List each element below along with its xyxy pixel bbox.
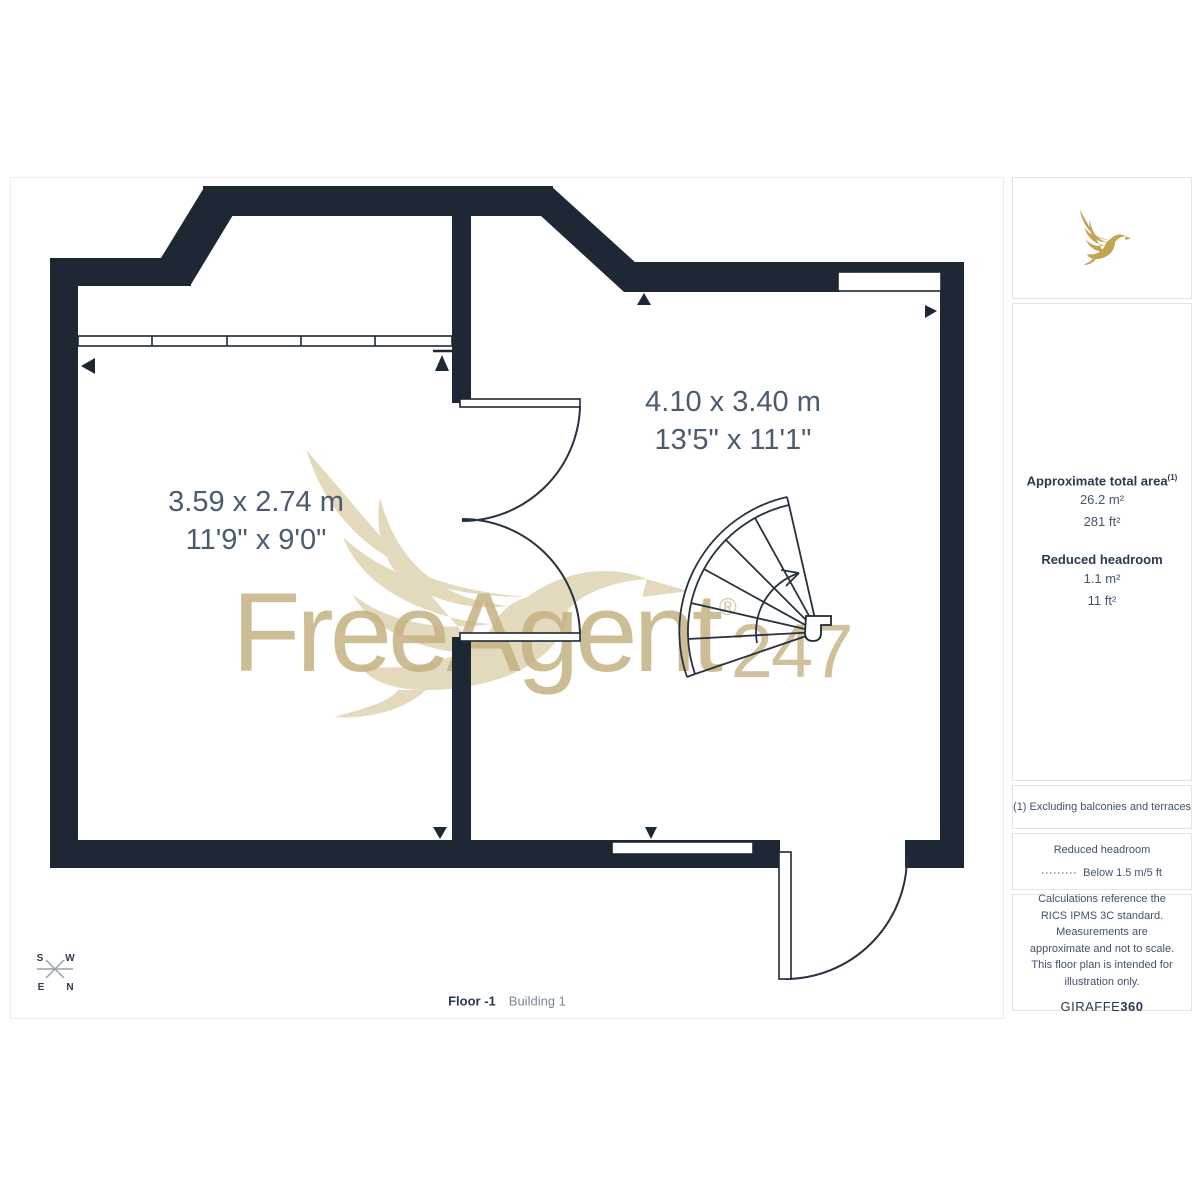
sidebar-area-box: Approximate total area(1) 26.2 m² 281 ft… — [1012, 303, 1192, 781]
sidebar-legend-box: Reduced headroom Below 1.5 m/5 ft — [1012, 833, 1192, 890]
footnote-text: (1) Excluding balconies and terraces — [1013, 799, 1191, 816]
room-imperial: 13'5" x 11'1" — [645, 421, 821, 459]
headroom-heading: Reduced headroom — [1041, 552, 1162, 567]
headroom-metric: 1.1 m² — [1084, 570, 1121, 589]
headroom-imperial: 11 ft² — [1088, 592, 1117, 611]
watermark-word: FreeAgent — [232, 570, 719, 695]
dotted-line-icon — [1042, 871, 1076, 875]
sidebar-footnote-box: (1) Excluding balconies and terraces — [1012, 785, 1192, 829]
watermark-247: 247 — [731, 609, 852, 694]
area-heading: Approximate total area(1) — [1027, 473, 1178, 488]
brand-bird-icon — [1071, 207, 1133, 269]
floorplan-page: FreeAgent®247 — [0, 0, 1200, 1200]
legend-heading: Reduced headroom — [1054, 842, 1151, 859]
floor-title: Floor -1 Building 1 — [448, 994, 566, 1009]
sidebar-disclaimer-box: Calculations reference the RICS IPMS 3C … — [1012, 894, 1192, 1011]
room-label-right: 4.10 x 3.40 m 13'5" x 11'1" — [645, 383, 821, 459]
watermark: FreeAgent®247 — [232, 577, 857, 689]
footnote-marker: (1) — [1168, 473, 1178, 482]
brand-wordmark: GIRAFFE360 — [1060, 999, 1143, 1014]
area-imperial: 281 ft² — [1084, 513, 1121, 532]
sidebar-logo-box — [1012, 177, 1192, 299]
disclaimer-text: Calculations reference the RICS IPMS 3C … — [1025, 891, 1179, 990]
building-name: Building 1 — [509, 994, 566, 1009]
area-metric: 26.2 m² — [1080, 491, 1124, 510]
floor-name: Floor -1 — [448, 994, 496, 1009]
room-metric: 3.59 x 2.74 m — [168, 483, 344, 521]
legend-label: Below 1.5 m/5 ft — [1083, 865, 1162, 882]
room-imperial: 11'9" x 9'0" — [168, 521, 344, 559]
room-metric: 4.10 x 3.40 m — [645, 383, 821, 421]
room-label-left: 3.59 x 2.74 m 11'9" x 9'0" — [168, 483, 344, 559]
